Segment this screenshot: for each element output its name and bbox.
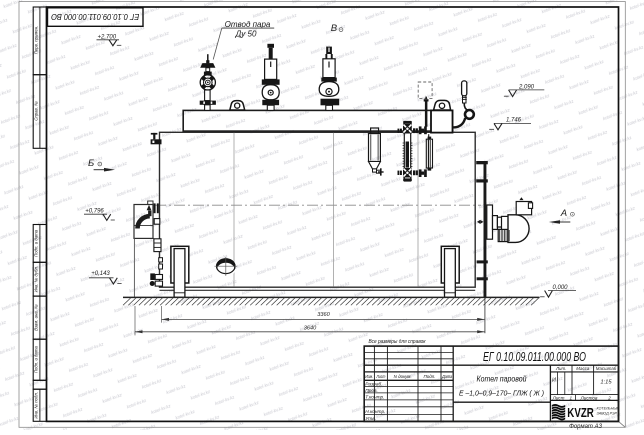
svg-text:+0,796: +0,796 [85, 208, 104, 214]
svg-text:Масса: Масса [576, 366, 590, 371]
svg-text:Лист: Лист [552, 395, 565, 400]
svg-text:Формат А3: Формат А3 [569, 424, 602, 430]
svg-text:1: 1 [570, 395, 573, 400]
svg-text:3640: 3640 [304, 325, 317, 331]
svg-text:Е –1,0–0,9–170– ГЛЖ ( Ж ): Е –1,0–0,9–170– ГЛЖ ( Ж ) [459, 388, 544, 397]
svg-text:Дата: Дата [441, 374, 452, 379]
svg-text:Изм.: Изм. [365, 374, 373, 379]
svg-text:Взам. инв. №: Взам. инв. № [34, 304, 39, 331]
svg-text:КОТЕЛЬНЫЙ: КОТЕЛЬНЫЙ [597, 407, 620, 411]
svg-text:Инв. № дубл.: Инв. № дубл. [34, 266, 39, 292]
svg-text:И: И [552, 378, 556, 384]
svg-text:В: В [331, 23, 338, 34]
svg-text:Утв.: Утв. [365, 416, 376, 422]
svg-text:Н.контр.: Н.контр. [365, 409, 385, 415]
svg-text:Пров.: Пров. [365, 388, 378, 394]
svg-text:1:15: 1:15 [600, 380, 612, 386]
svg-text:ЗАВОД РЭР: ЗАВОД РЭР [597, 412, 618, 416]
svg-text:Котел паровой: Котел паровой [477, 374, 527, 384]
svg-text:Подп. и дата: Подп. и дата [34, 346, 39, 374]
svg-text:ЕГ 0.10.09.011.00.000 ВО: ЕГ 0.10.09.011.00.000 ВО [483, 350, 586, 364]
svg-text:Масштаб: Масштаб [596, 366, 617, 371]
svg-text:3360: 3360 [317, 312, 330, 318]
svg-text:1,746: 1,746 [506, 118, 522, 124]
svg-text:2: 2 [607, 395, 611, 400]
svg-text:Подп. и дата: Подп. и дата [34, 229, 39, 257]
svg-text:Лист: Лист [376, 374, 386, 379]
svg-text:Разраб.: Разраб. [365, 381, 382, 387]
svg-text:Ду 50: Ду 50 [235, 30, 257, 39]
svg-text:Справ. №: Справ. № [34, 101, 39, 121]
svg-text:Лит.: Лит. [555, 366, 566, 371]
svg-text:+0,143: +0,143 [91, 271, 110, 277]
svg-text:KVZR: KVZR [567, 405, 594, 420]
svg-text:Т.контр.: Т.контр. [365, 395, 384, 401]
svg-text:ЕГ 0.10.09.011.00.000 ВО: ЕГ 0.10.09.011.00.000 ВО [51, 12, 139, 21]
svg-text:2,090: 2,090 [518, 84, 535, 90]
svg-text:Перв. примен.: Перв. примен. [34, 26, 39, 55]
svg-text:Листов: Листов [580, 395, 598, 400]
svg-text:N докум.: N докум. [394, 374, 412, 379]
svg-text:Б: Б [88, 158, 94, 169]
svg-text:А: А [560, 208, 567, 219]
svg-text:Инв. № подл.: Инв. № подл. [34, 392, 39, 419]
svg-text:Подп.: Подп. [424, 374, 436, 379]
svg-text:Все размеры для справок: Все размеры для справок [369, 339, 426, 345]
